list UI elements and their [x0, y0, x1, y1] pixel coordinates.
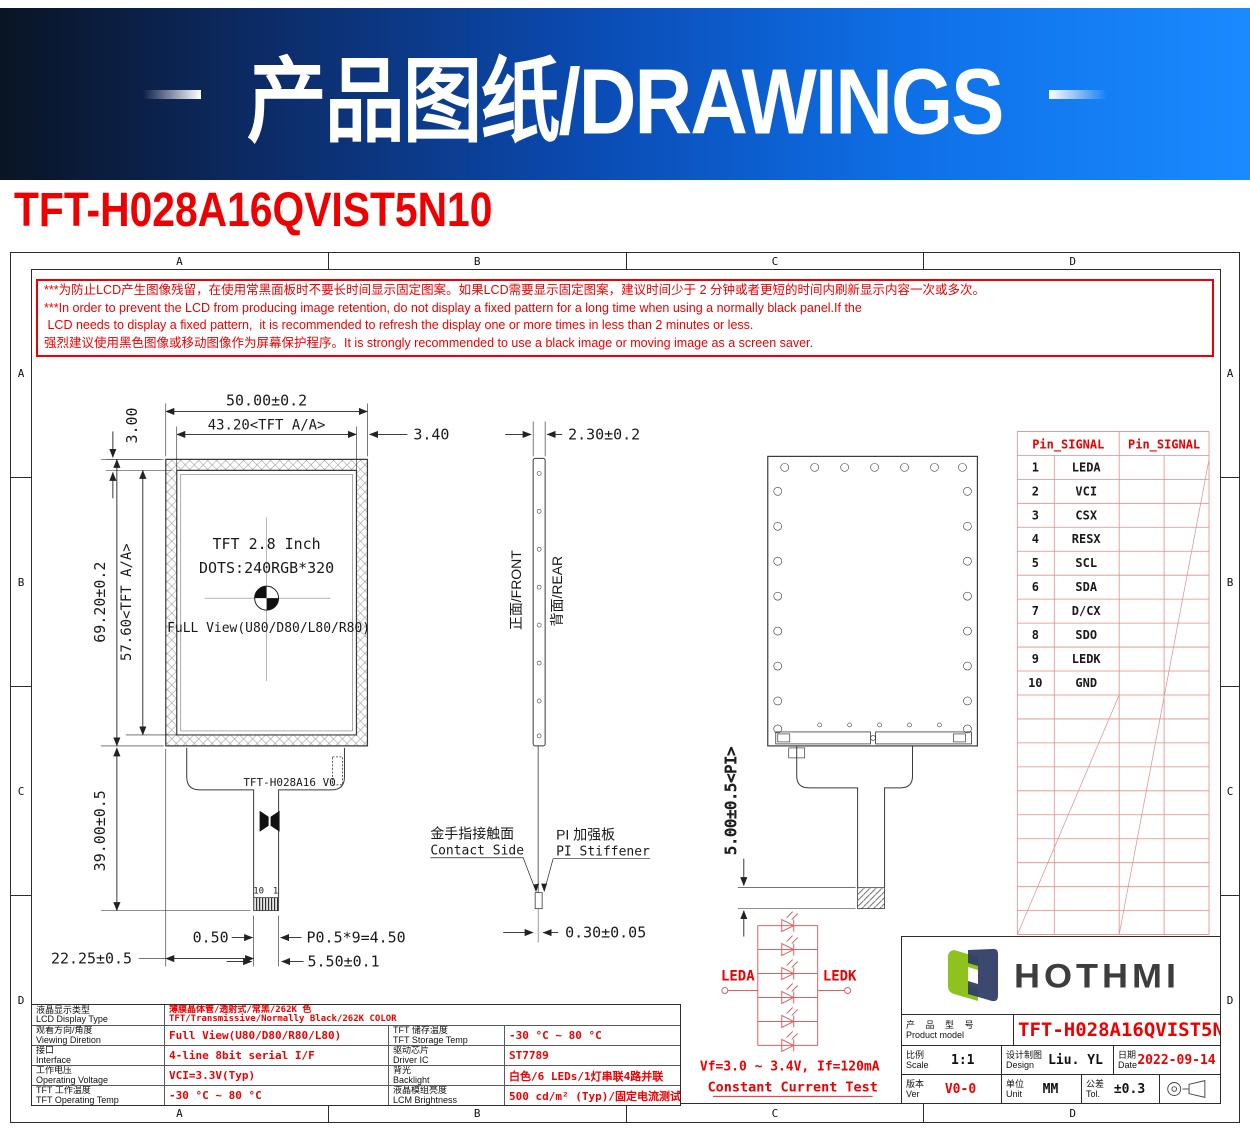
- title-block: HOTHMI 产 品 型 号Product model TFT-H028A16Q…: [901, 936, 1221, 1104]
- page-title: TFT-H028A16QVIST5N10: [14, 183, 492, 238]
- dim-aa-width: 43.20<TFT A/A>: [208, 417, 326, 433]
- pin-header-left: Pin_SIGNAL: [1032, 437, 1104, 452]
- rear-face-label: 背面/REAR: [549, 556, 565, 627]
- frame-row-label: C: [1221, 686, 1239, 895]
- svg-text:SDO: SDO: [1075, 628, 1097, 642]
- banner-title: 产品图纸/DRAWINGS: [247, 27, 1003, 160]
- frame-rows-right: A B C D: [1221, 269, 1239, 1104]
- version-value: V0-0: [945, 1082, 976, 1097]
- svg-text:9: 9: [1032, 652, 1039, 666]
- svg-text:SCL: SCL: [1075, 556, 1097, 570]
- spec-label: 液晶显示类型LCD Display Type: [32, 1005, 165, 1026]
- banner-dash-left-icon: [143, 90, 201, 99]
- frame-row-label: C: [11, 686, 31, 895]
- contact-side-cn: 金手指接触面: [430, 826, 514, 842]
- frame-col-label: B: [328, 1104, 626, 1122]
- front-view-texts: 50.00±0.2 43.20<TFT A/A> 3.40 3.00 69.20…: [51, 391, 449, 970]
- svg-text:GND: GND: [1075, 676, 1097, 690]
- dim-finger-width: 5.50±0.1: [308, 953, 380, 971]
- svg-text:VCI: VCI: [1075, 484, 1097, 498]
- spec-label: 接口Interface: [32, 1046, 165, 1066]
- svg-text:LEDK: LEDK: [1072, 652, 1102, 666]
- led-anode-label: LEDA: [721, 969, 755, 985]
- spec-value: 500 cd/m² (Typ)/固定电流测试: [505, 1086, 680, 1105]
- spec-value: -30 °C ~ 80 °C: [505, 1026, 680, 1046]
- spec-label: 液晶模组亮度LCM Brightness: [389, 1086, 505, 1105]
- dim-aa-height: 57.60<TFT A/A>: [119, 543, 135, 661]
- frame-col-label: C: [626, 253, 924, 269]
- spec-label: TFT 储存温度TFT Storage Temp: [389, 1026, 505, 1046]
- dim-right-margin: 3.40: [413, 425, 449, 443]
- frame-row-label: B: [1221, 477, 1239, 686]
- dim-pitch: P0.5*9=4.50: [307, 929, 406, 947]
- svg-text:D/CX: D/CX: [1072, 604, 1102, 618]
- svg-text:SDA: SDA: [1075, 580, 1097, 594]
- frame-col-label: A: [31, 253, 328, 269]
- frame-rows-left: A B C D: [11, 269, 31, 1104]
- product-model-value-cell: TFT-H028A16QVIST5N10: [1014, 1015, 1220, 1045]
- led-spec-label: Vf=3.0 ~ 3.4V, If=120mA: [700, 1059, 880, 1074]
- spec-label: 观看方向/角度Viewing Diretion: [32, 1026, 165, 1046]
- rear-view: [768, 456, 978, 908]
- unit-cell: 单位Unit MM: [1002, 1075, 1082, 1103]
- product-model-value: TFT-H028A16QVIST5N10: [1018, 1019, 1220, 1041]
- spec-table: 液晶显示类型LCD Display Type 薄膜晶体管/透射式/常黑/262K…: [31, 1004, 681, 1106]
- rear-view-dimensions: 5.00±0.5<PI>: [722, 747, 856, 937]
- frame-col-label: D: [923, 1104, 1221, 1122]
- hothmi-mark-icon: [260, 811, 280, 832]
- svg-text:4: 4: [1032, 532, 1039, 546]
- dim-thickness: 2.30±0.2: [568, 425, 640, 443]
- pin-table: Pin_SIGNAL Pin_SIGNAL 1LEDA 2VCI 3CSX 4R…: [1017, 431, 1209, 934]
- fpc-part-label: TFT-H028A16 V0: [243, 776, 335, 789]
- front-face-label: 正面/FRONT: [508, 550, 524, 630]
- company-logo: HOTHMI: [902, 937, 1220, 1015]
- spec-value: 白色/6 LEDs/1灯串联4路并联: [505, 1066, 680, 1086]
- dim-fpc-length: 39.00±0.5: [91, 790, 109, 871]
- banner-dash-right-icon: [1049, 90, 1107, 99]
- side-view-texts: 2.30±0.2 正面/FRONT 背面/REAR 金手指接触面 Contact…: [430, 425, 650, 941]
- drawing-sheet: A B C D A B C D A B C D A B C D ***为防止LC…: [10, 252, 1240, 1123]
- pin-header-right: Pin_SIGNAL: [1128, 437, 1200, 452]
- frame-row-label: A: [11, 269, 31, 477]
- product-model-label: 产 品 型 号Product model: [902, 1015, 1014, 1045]
- svg-text:1: 1: [1032, 460, 1039, 474]
- header-banner: 产品图纸/DRAWINGS: [0, 8, 1250, 180]
- spec-value: VCI=3.3V(Typ): [165, 1066, 389, 1086]
- hothmi-logo-icon: [942, 944, 1004, 1008]
- design-value: Liu. YL: [1048, 1053, 1103, 1068]
- display-dots-label: DOTS:240RGB*320: [199, 559, 334, 577]
- front-view: [166, 459, 368, 910]
- dim-overall-height: 69.20±0.2: [91, 562, 109, 643]
- stiffener-cn: PI 加强板: [556, 827, 615, 843]
- svg-text:7: 7: [1032, 604, 1039, 618]
- svg-text:CSX: CSX: [1075, 508, 1097, 522]
- spec-label: 背光Backlight: [389, 1066, 505, 1086]
- ver-unit-tol-row: 版本Ver V0-0 单位Unit MM 公差Tol. ±0.3: [902, 1075, 1220, 1103]
- frame-col-label: D: [923, 253, 1221, 269]
- svg-text:6: 6: [1032, 580, 1039, 594]
- led-circuit-texts: LEDA LEDK Vf=3.0 ~ 3.4V, If=120mA Consta…: [700, 969, 880, 1096]
- frame-col-label: B: [328, 253, 626, 269]
- svg-text:5: 5: [1032, 556, 1039, 570]
- spec-value: 薄膜晶体管/透射式/常黑/262K 色TFT/Transmissive/Norm…: [165, 1005, 680, 1026]
- svg-text:2: 2: [1032, 484, 1039, 498]
- frame-row-label: D: [1221, 895, 1239, 1104]
- pin-last-label: 10: [253, 887, 264, 897]
- spec-value: 4-line 8bit serial I/F: [165, 1046, 389, 1066]
- third-angle-projection-icon: [1164, 1079, 1216, 1099]
- dim-fpc-thickness: 0.30±0.05: [565, 924, 646, 942]
- spec-label: 驱动芯片Driver IC: [389, 1046, 505, 1066]
- display-view-label: FuLL View(U80/D80/L80/R80): [167, 621, 370, 636]
- spec-label: TFT 工作温度TFT Operating Temp: [32, 1086, 165, 1105]
- date-cell: 日期Date 2022-09-14: [1114, 1046, 1220, 1074]
- projection-symbol-cell: [1160, 1075, 1220, 1103]
- svg-text:3: 3: [1032, 508, 1039, 522]
- stiffener-en: PI Stiffener: [556, 845, 650, 860]
- tolerance-value: ±0.3: [1114, 1082, 1145, 1097]
- frame-col-label: C: [626, 1104, 924, 1122]
- frame-row-label: A: [1221, 269, 1239, 477]
- led-cathode-label: LEDK: [823, 969, 857, 985]
- scale-cell: 比例Scale 1:1: [902, 1046, 1002, 1074]
- frame-columns-top: A B C D: [31, 253, 1221, 269]
- product-model-row: 产 品 型 号Product model TFT-H028A16QVIST5N1…: [902, 1015, 1220, 1046]
- display-size-label: TFT 2.8 Inch: [213, 535, 321, 553]
- frame-row-label: D: [11, 895, 31, 1104]
- svg-text:LEDA: LEDA: [1072, 460, 1102, 474]
- frame-col-label: A: [31, 1104, 328, 1122]
- spec-label: 工作电压Operating Voltage: [32, 1066, 165, 1086]
- drawing-page: 产品图纸/DRAWINGS TFT-H028A16QVIST5N10 A B C…: [0, 0, 1250, 1133]
- dim-finger-margin: 0.50: [193, 929, 229, 947]
- contact-side-en: Contact Side: [430, 844, 524, 859]
- svg-text:10: 10: [1028, 676, 1042, 690]
- frame-row-label: B: [11, 477, 31, 686]
- scale-design-date-row: 比例Scale 1:1 设计制图Design Liu. YL 日期Date 20…: [902, 1046, 1220, 1075]
- tolerance-cell: 公差Tol. ±0.3: [1082, 1075, 1160, 1103]
- svg-text:RESX: RESX: [1072, 532, 1102, 546]
- unit-value: MM: [1043, 1082, 1059, 1097]
- dim-top-margin: 3.00: [123, 407, 141, 443]
- design-cell: 设计制图Design Liu. YL: [1002, 1046, 1114, 1074]
- pin-first-label: 1: [273, 887, 278, 897]
- spec-value: -30 °C ~ 80 °C: [165, 1086, 389, 1105]
- logo-wordmark: HOTHMI: [1014, 956, 1180, 996]
- led-test-label: Constant Current Test: [708, 1079, 878, 1095]
- dim-overall-width: 50.00±0.2: [226, 391, 307, 409]
- spec-value: Full View(U80/D80/R80/L80): [165, 1026, 389, 1046]
- scale-value: 1:1: [951, 1053, 974, 1068]
- date-value: 2022-09-14: [1137, 1053, 1215, 1068]
- dim-stiffener-length: 5.00±0.5<PI>: [722, 747, 740, 855]
- dim-fpc-offset: 22.25±0.5: [51, 950, 132, 968]
- side-view: [533, 458, 545, 942]
- led-symbols: [782, 912, 798, 1052]
- svg-text:8: 8: [1032, 628, 1039, 642]
- frame-columns-bottom: A B C D: [31, 1104, 1221, 1122]
- version-cell: 版本Ver V0-0: [902, 1075, 1002, 1103]
- spec-value: ST7789: [505, 1046, 680, 1066]
